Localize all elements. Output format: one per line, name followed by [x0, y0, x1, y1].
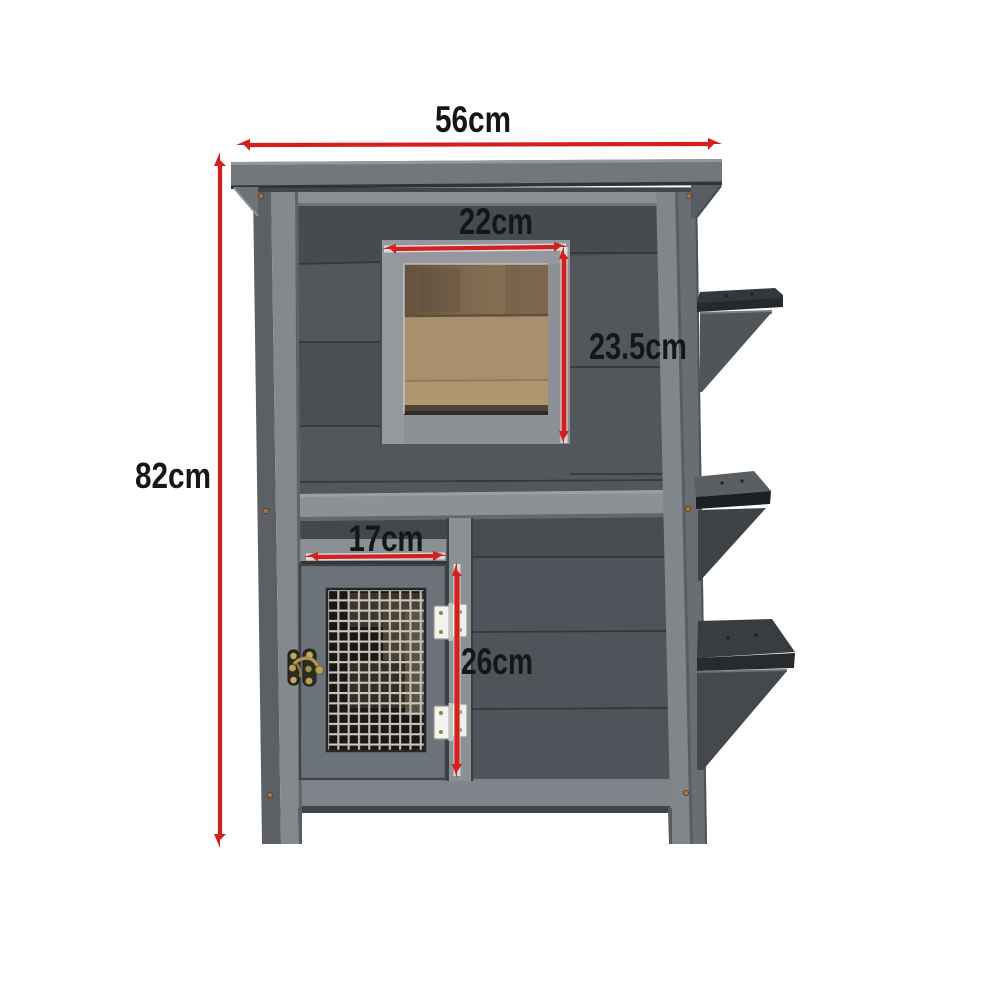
- svg-text:82cm: 82cm: [135, 455, 211, 496]
- svg-text:17cm: 17cm: [349, 518, 424, 559]
- svg-text:26cm: 26cm: [461, 641, 533, 682]
- svg-text:56cm: 56cm: [435, 99, 511, 140]
- svg-text:23.5cm: 23.5cm: [589, 326, 687, 367]
- svg-text:22cm: 22cm: [459, 201, 533, 242]
